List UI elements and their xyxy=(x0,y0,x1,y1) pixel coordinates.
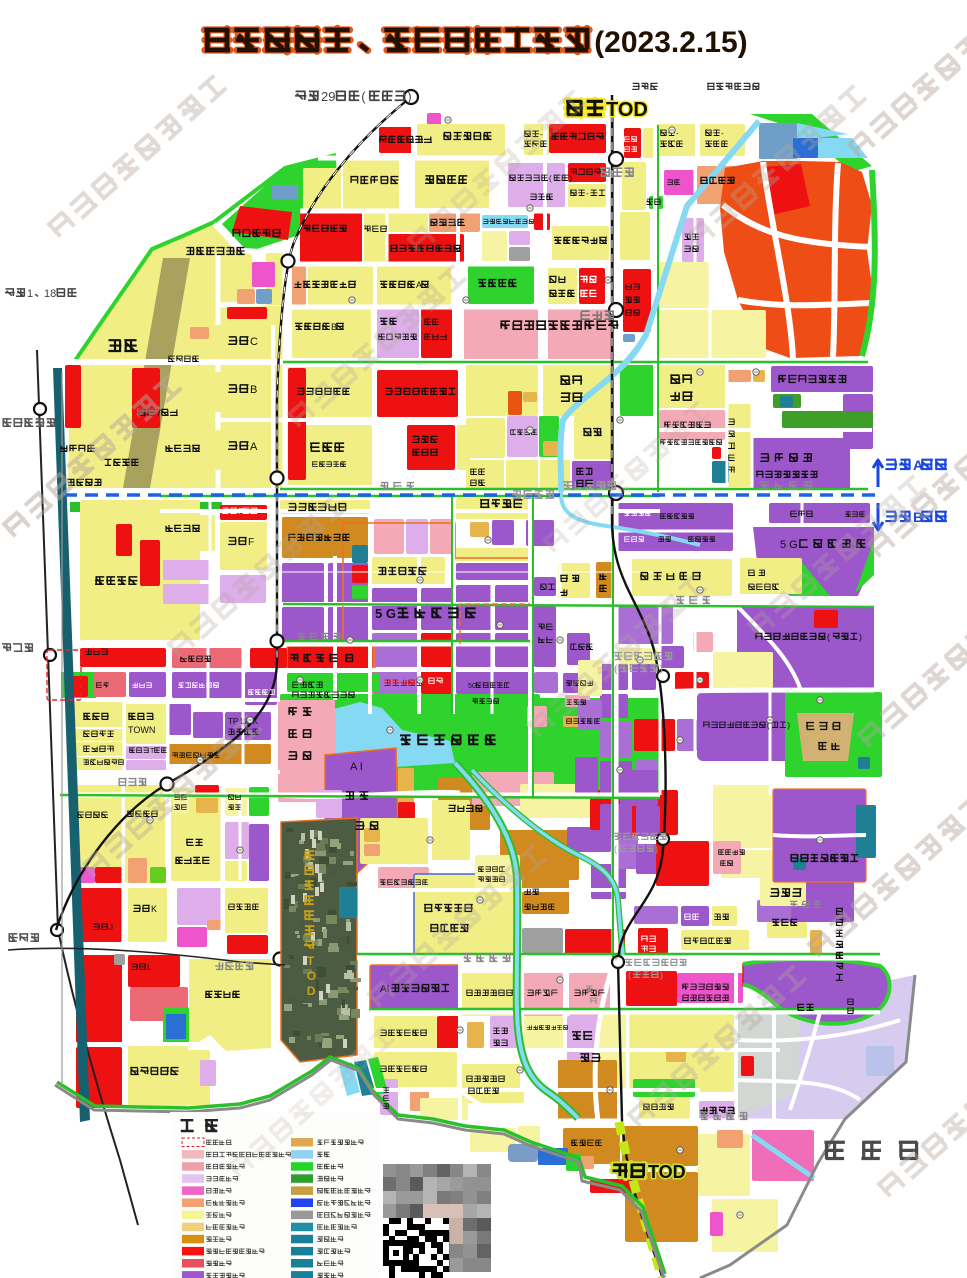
svg-text:F: F xyxy=(238,507,243,516)
svg-text:5G: 5G xyxy=(468,683,477,690)
svg-text:(: ( xyxy=(361,89,366,104)
svg-text:TOD: TOD xyxy=(648,1162,686,1182)
svg-text:O: O xyxy=(307,969,316,983)
svg-text:T: T xyxy=(150,748,155,755)
svg-text:(: ( xyxy=(614,844,617,854)
svg-text:C: C xyxy=(250,336,258,348)
svg-text:-: - xyxy=(721,129,724,138)
svg-text:-: - xyxy=(540,130,543,139)
svg-text:TOD: TOD xyxy=(606,99,648,121)
svg-text:TOWN: TOWN xyxy=(128,725,155,735)
svg-text:5 G: 5 G xyxy=(780,539,798,551)
svg-text:-: - xyxy=(676,129,679,138)
svg-text:): ) xyxy=(655,844,658,854)
svg-text:-: - xyxy=(586,189,589,198)
svg-text:1: 1 xyxy=(27,288,33,300)
svg-text:A: A xyxy=(913,457,923,473)
svg-text:): ) xyxy=(660,664,663,675)
svg-text:29: 29 xyxy=(321,89,335,104)
svg-text:F: F xyxy=(248,537,254,548)
svg-text:(: ( xyxy=(628,970,631,980)
svg-text:J: J xyxy=(109,923,113,932)
svg-text:K: K xyxy=(151,904,157,914)
svg-text:A: A xyxy=(416,280,422,290)
svg-text:A I: A I xyxy=(350,761,363,773)
svg-text:(: ( xyxy=(827,632,830,642)
svg-text:B: B xyxy=(331,322,337,332)
svg-text:): ) xyxy=(569,174,572,183)
svg-text:5 G: 5 G xyxy=(375,606,396,621)
svg-text:D: D xyxy=(307,984,316,998)
svg-text:L: L xyxy=(147,963,152,972)
svg-text:): ) xyxy=(859,632,862,642)
svg-text:B: B xyxy=(250,384,257,396)
svg-text:): ) xyxy=(660,970,663,980)
svg-text:): ) xyxy=(407,89,411,104)
svg-text:): ) xyxy=(787,721,790,730)
svg-text:T: T xyxy=(307,954,315,968)
svg-text:(2023.2.15): (2023.2.15) xyxy=(594,26,747,59)
svg-text:(: ( xyxy=(549,174,552,183)
svg-text:A: A xyxy=(250,441,258,453)
svg-text:18: 18 xyxy=(44,288,56,300)
